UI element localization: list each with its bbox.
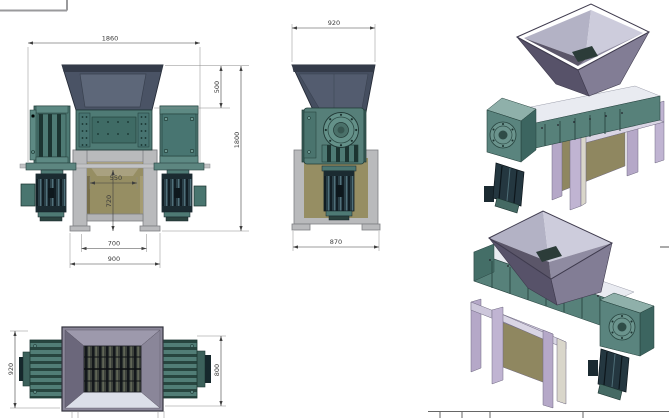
dim-label-side-base-width: 870 bbox=[330, 238, 342, 246]
top-left-gearbox bbox=[19, 340, 62, 398]
dim-label-front-base-inner-width: 700 bbox=[108, 240, 120, 248]
dim-label-front-overall-width: 1860 bbox=[102, 35, 119, 43]
dim-label-front-total-height: 1800 bbox=[233, 132, 241, 149]
iso-b-stand bbox=[471, 299, 566, 408]
title-block-edge bbox=[428, 412, 669, 418]
iso-b-gearbox bbox=[600, 293, 654, 356]
side-gearbox bbox=[302, 108, 366, 164]
side-hopper bbox=[292, 65, 375, 112]
front-right-gearbox bbox=[160, 106, 198, 164]
top-right-gearbox bbox=[163, 340, 211, 398]
dim-label-top-width: 800 bbox=[213, 364, 221, 376]
front-left-plate bbox=[26, 163, 76, 170]
drawing-frame-corner bbox=[0, 0, 67, 11]
iso-a-gearbox bbox=[487, 98, 536, 162]
iso-a-hopper bbox=[517, 4, 649, 96]
dim-label-front-chamber-width: 550 bbox=[110, 174, 122, 182]
dim-label-front-hopper-height: 500 bbox=[213, 81, 221, 93]
top-view: 920 800 bbox=[7, 327, 226, 418]
front-cutting-chamber bbox=[76, 110, 152, 150]
iso-b-motor bbox=[588, 349, 629, 400]
front-right-plate bbox=[154, 163, 204, 170]
front-view: 1860 500 1800 550 720 700 900 bbox=[20, 35, 249, 269]
front-stand bbox=[70, 150, 160, 231]
dim-label-front-discharge-height: 720 bbox=[105, 195, 113, 207]
dim-label-side-hopper-width: 920 bbox=[328, 19, 340, 27]
cad-drawing-sheet: 1860 500 1800 550 720 700 900 bbox=[0, 0, 669, 418]
front-right-motor bbox=[162, 170, 206, 221]
side-motor bbox=[322, 166, 356, 220]
iso-view-upper bbox=[484, 4, 664, 213]
iso-view-lower bbox=[471, 211, 654, 408]
dim-label-top-length: 920 bbox=[7, 363, 15, 375]
front-hopper bbox=[62, 65, 163, 110]
dim-label-front-base-width: 900 bbox=[108, 255, 120, 263]
iso-a-motor bbox=[484, 163, 524, 213]
front-left-gearbox bbox=[30, 106, 70, 164]
front-left-motor bbox=[21, 170, 66, 221]
top-rotor-blades bbox=[84, 346, 141, 392]
side-view: 920 870 bbox=[292, 19, 380, 251]
